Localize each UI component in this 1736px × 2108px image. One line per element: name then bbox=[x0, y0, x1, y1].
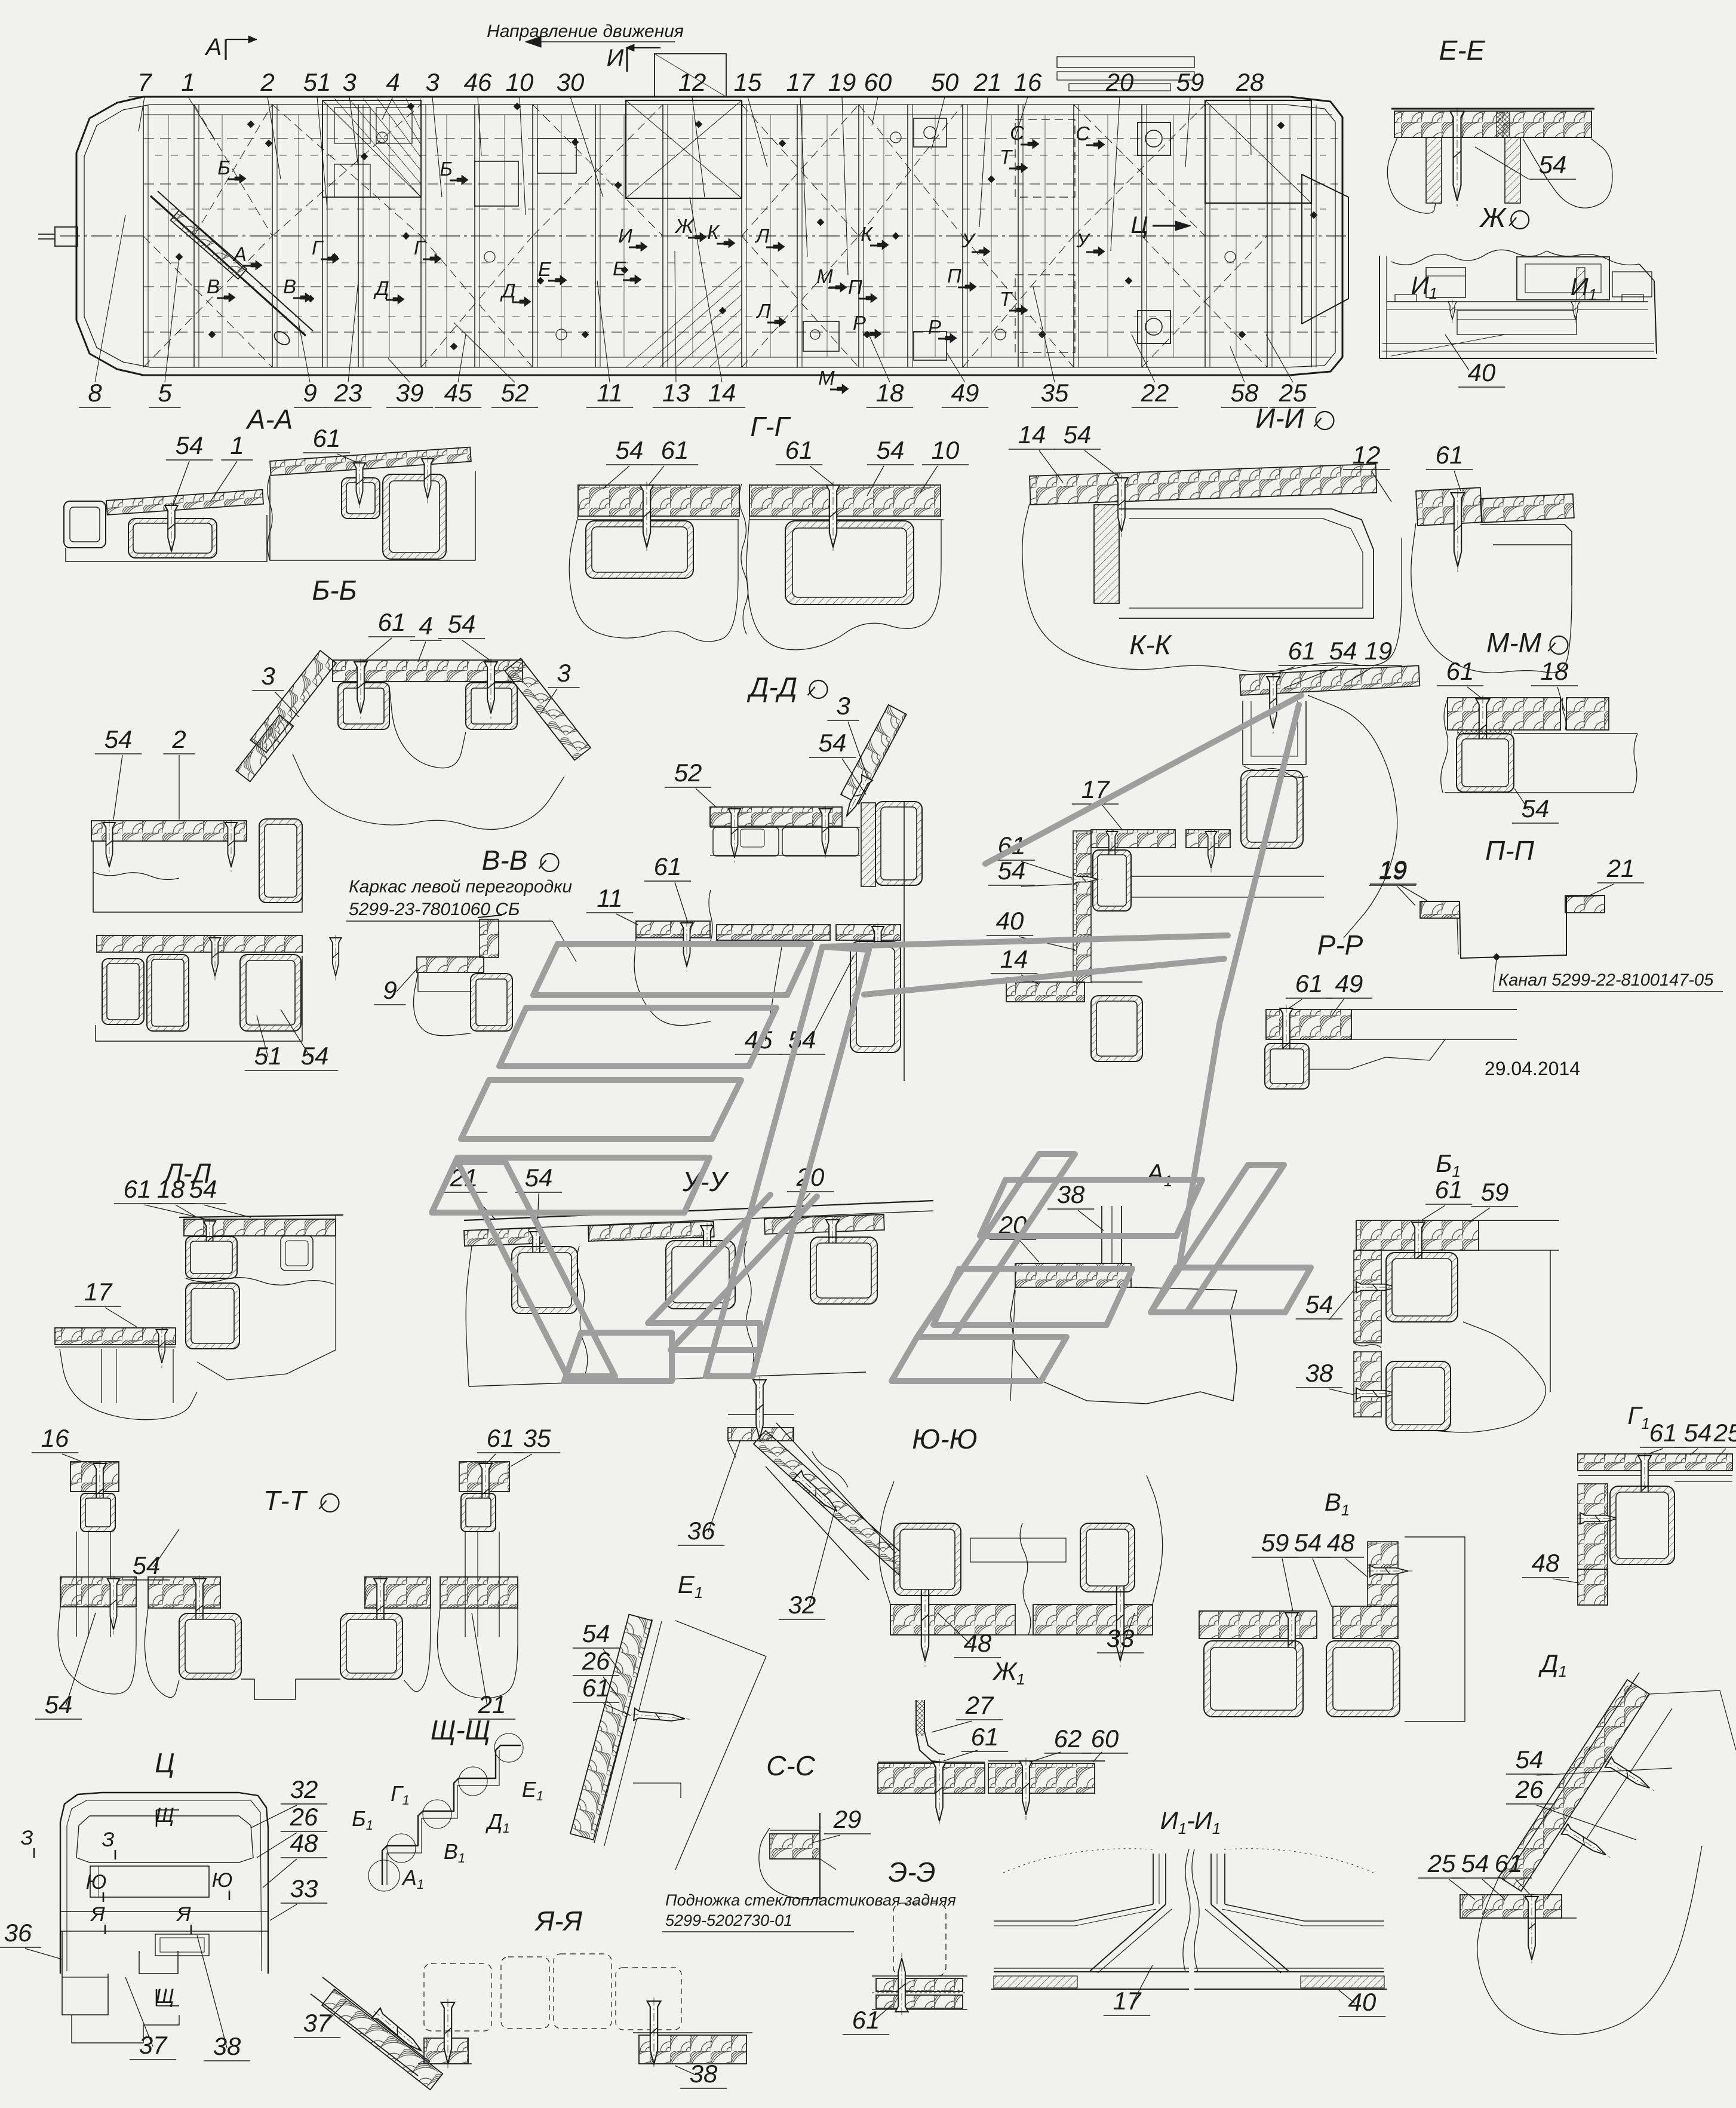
svg-text:61: 61 bbox=[1649, 1419, 1677, 1447]
svg-text:49: 49 bbox=[951, 379, 979, 407]
svg-text:38: 38 bbox=[213, 2032, 241, 2060]
svg-text:60: 60 bbox=[1091, 1725, 1119, 1753]
svg-text:К: К bbox=[707, 221, 720, 243]
svg-text:9: 9 bbox=[303, 379, 317, 407]
svg-text:29: 29 bbox=[833, 1805, 862, 1833]
svg-text:Ю: Ю bbox=[212, 1869, 233, 1892]
svg-text:Д-Д: Д-Д bbox=[746, 671, 797, 702]
svg-text:32: 32 bbox=[290, 1775, 318, 1803]
svg-text:17: 17 bbox=[786, 68, 815, 96]
svg-text:В: В bbox=[283, 275, 296, 297]
svg-text:23: 23 bbox=[334, 379, 362, 407]
svg-text:54: 54 bbox=[1461, 1849, 1489, 1877]
svg-text:Я: Я bbox=[90, 1903, 105, 1926]
svg-text:54: 54 bbox=[133, 1551, 161, 1579]
svg-text:Л: Л bbox=[756, 300, 771, 322]
svg-text:54: 54 bbox=[105, 725, 133, 753]
svg-text:15: 15 bbox=[734, 68, 762, 96]
svg-text:Каркас левой перегородки: Каркас левой перегородки bbox=[349, 877, 572, 897]
svg-text:36: 36 bbox=[687, 1517, 715, 1545]
svg-text:61: 61 bbox=[582, 1674, 610, 1702]
svg-text:22: 22 bbox=[1141, 379, 1169, 407]
svg-text:7: 7 bbox=[137, 68, 152, 96]
svg-text:10: 10 bbox=[932, 436, 960, 464]
svg-text:Направление движения: Направление движения bbox=[487, 22, 684, 41]
svg-text:54: 54 bbox=[1516, 1745, 1544, 1773]
svg-text:59: 59 bbox=[1481, 1178, 1509, 1206]
svg-text:5: 5 bbox=[158, 379, 172, 407]
svg-text:З: З bbox=[102, 1828, 115, 1851]
svg-text:48: 48 bbox=[290, 1829, 318, 1857]
svg-text:Ю: Ю bbox=[86, 1871, 107, 1894]
svg-text:27: 27 bbox=[965, 1691, 994, 1719]
svg-text:54: 54 bbox=[301, 1042, 329, 1070]
svg-text:К-К: К-К bbox=[1129, 629, 1172, 660]
svg-text:Р-Р: Р-Р bbox=[1317, 929, 1363, 961]
svg-text:Т: Т bbox=[1000, 288, 1013, 310]
svg-text:54: 54 bbox=[1329, 637, 1357, 665]
svg-text:37: 37 bbox=[303, 2009, 332, 2037]
svg-text:17: 17 bbox=[1113, 1987, 1142, 2015]
svg-text:М: М bbox=[816, 265, 833, 287]
svg-text:40: 40 bbox=[1468, 358, 1496, 386]
svg-text:40: 40 bbox=[996, 907, 1024, 935]
svg-text:16: 16 bbox=[1014, 68, 1042, 96]
svg-text:С-С: С-С bbox=[766, 1750, 816, 1781]
svg-text:61: 61 bbox=[124, 1175, 152, 1203]
svg-text:46: 46 bbox=[464, 68, 492, 96]
svg-text:54: 54 bbox=[998, 857, 1026, 885]
svg-text:3: 3 bbox=[557, 659, 570, 687]
svg-text:Э-Э: Э-Э bbox=[888, 1857, 935, 1888]
svg-text:54: 54 bbox=[189, 1175, 217, 1203]
svg-text:18: 18 bbox=[876, 379, 904, 407]
svg-text:Ж: Ж bbox=[674, 215, 695, 237]
svg-text:61: 61 bbox=[852, 2006, 880, 2034]
svg-text:3: 3 bbox=[261, 662, 275, 690]
svg-text:26: 26 bbox=[290, 1803, 318, 1831]
svg-text:48: 48 bbox=[964, 1629, 992, 1657]
svg-text:Л: Л bbox=[755, 225, 770, 247]
svg-text:25: 25 bbox=[1713, 1419, 1736, 1447]
svg-text:1: 1 bbox=[230, 431, 244, 459]
svg-text:П: П bbox=[947, 265, 961, 287]
svg-text:Щ: Щ bbox=[155, 1985, 174, 2008]
svg-text:14: 14 bbox=[1000, 945, 1028, 973]
svg-text:П-П: П-П bbox=[1485, 835, 1535, 866]
svg-text:З: З bbox=[21, 1827, 33, 1849]
svg-text:54: 54 bbox=[1064, 421, 1092, 449]
svg-text:Щ-Щ: Щ-Щ bbox=[431, 1714, 490, 1745]
svg-text:А: А bbox=[205, 34, 222, 60]
svg-text:С: С bbox=[1076, 122, 1090, 145]
svg-text:61: 61 bbox=[378, 608, 406, 636]
svg-text:49: 49 bbox=[1335, 969, 1363, 998]
svg-text:И: И bbox=[618, 225, 632, 247]
svg-text:61: 61 bbox=[1288, 637, 1316, 665]
svg-text:54: 54 bbox=[877, 436, 905, 464]
svg-text:А: А bbox=[232, 243, 247, 265]
svg-text:38: 38 bbox=[1057, 1180, 1085, 1208]
svg-text:У: У bbox=[1076, 229, 1090, 251]
svg-text:14: 14 bbox=[708, 379, 736, 407]
svg-text:А-А: А-А bbox=[245, 404, 293, 435]
svg-text:62: 62 bbox=[1054, 1725, 1082, 1753]
svg-text:Щ: Щ bbox=[155, 1804, 174, 1827]
svg-text:54: 54 bbox=[1522, 794, 1550, 823]
svg-text:52: 52 bbox=[674, 759, 702, 787]
svg-text:50: 50 bbox=[931, 68, 959, 96]
svg-text:17: 17 bbox=[84, 1278, 113, 1306]
svg-text:54: 54 bbox=[1294, 1529, 1322, 1557]
svg-text:В: В bbox=[207, 275, 220, 297]
svg-text:36: 36 bbox=[4, 1919, 32, 1947]
svg-text:54: 54 bbox=[1684, 1419, 1712, 1447]
svg-text:2: 2 bbox=[171, 725, 186, 753]
svg-text:26: 26 bbox=[1515, 1775, 1544, 1803]
svg-text:3: 3 bbox=[425, 68, 439, 96]
svg-text:Р: Р bbox=[928, 316, 941, 338]
svg-text:Г: Г bbox=[414, 237, 426, 259]
svg-text:14: 14 bbox=[1018, 421, 1046, 449]
svg-text:Д: Д bbox=[499, 280, 515, 302]
svg-text:29.04.2014: 29.04.2014 bbox=[1485, 1058, 1580, 1079]
svg-text:54: 54 bbox=[176, 431, 204, 459]
svg-text:Б: Б bbox=[217, 157, 230, 179]
svg-text:Я: Я bbox=[176, 1903, 191, 1926]
svg-text:52: 52 bbox=[501, 379, 529, 407]
svg-text:8: 8 bbox=[88, 379, 102, 407]
svg-text:61: 61 bbox=[785, 436, 813, 464]
svg-text:30: 30 bbox=[557, 68, 585, 96]
svg-text:М-М: М-М bbox=[1486, 627, 1542, 658]
svg-text:61: 61 bbox=[661, 436, 689, 464]
svg-text:25: 25 bbox=[1427, 1849, 1456, 1877]
svg-text:У: У bbox=[961, 229, 976, 251]
svg-text:18: 18 bbox=[1541, 657, 1569, 685]
svg-text:10: 10 bbox=[506, 68, 534, 96]
svg-text:9: 9 bbox=[383, 976, 397, 1004]
svg-text:35: 35 bbox=[523, 1424, 551, 1452]
svg-text:Е-Е: Е-Е bbox=[1439, 35, 1486, 66]
svg-text:33: 33 bbox=[290, 1874, 318, 1903]
svg-text:3: 3 bbox=[836, 692, 850, 720]
svg-text:12: 12 bbox=[678, 68, 706, 96]
svg-text:5299-5202730-01: 5299-5202730-01 bbox=[665, 1911, 792, 1929]
svg-text:32: 32 bbox=[788, 1591, 816, 1619]
svg-text:19: 19 bbox=[1365, 637, 1393, 665]
svg-text:С: С bbox=[1010, 122, 1025, 144]
svg-text:Канал 5299-22-8100147-05: Канал 5299-22-8100147-05 bbox=[1498, 971, 1714, 990]
svg-text:51: 51 bbox=[303, 68, 331, 96]
svg-text:21: 21 bbox=[973, 68, 1002, 96]
svg-text:Ц: Ц bbox=[1130, 212, 1148, 238]
svg-text:3: 3 bbox=[342, 68, 356, 96]
svg-text:26: 26 bbox=[582, 1647, 610, 1675]
svg-text:11: 11 bbox=[597, 884, 623, 912]
svg-text:Я-Я: Я-Я bbox=[534, 1906, 583, 1937]
svg-text:61: 61 bbox=[1295, 969, 1323, 998]
svg-text:59: 59 bbox=[1261, 1529, 1289, 1557]
svg-text:54: 54 bbox=[819, 729, 847, 757]
svg-text:54: 54 bbox=[525, 1164, 553, 1192]
svg-text:40: 40 bbox=[1348, 1988, 1376, 2016]
svg-text:Ю-Ю: Ю-Ю bbox=[912, 1423, 977, 1455]
svg-text:1: 1 bbox=[181, 68, 195, 96]
svg-text:38: 38 bbox=[1305, 1359, 1334, 1387]
svg-text:11: 11 bbox=[597, 379, 623, 407]
svg-text:61: 61 bbox=[1495, 1849, 1523, 1877]
svg-text:39: 39 bbox=[396, 379, 424, 407]
svg-text:61: 61 bbox=[1435, 1176, 1463, 1204]
svg-text:13: 13 bbox=[662, 379, 690, 407]
svg-text:61: 61 bbox=[487, 1424, 515, 1452]
svg-text:19: 19 bbox=[828, 68, 856, 96]
svg-text:18: 18 bbox=[157, 1175, 185, 1203]
svg-text:Т-Т: Т-Т bbox=[263, 1485, 308, 1516]
svg-text:60: 60 bbox=[864, 68, 892, 96]
svg-text:48: 48 bbox=[1532, 1549, 1560, 1577]
svg-text:4: 4 bbox=[386, 68, 400, 96]
svg-text:61: 61 bbox=[971, 1723, 999, 1751]
svg-text:Р: Р bbox=[853, 312, 866, 334]
svg-text:Е: Е bbox=[538, 258, 552, 280]
svg-text:И: И bbox=[607, 45, 624, 71]
svg-text:К: К bbox=[861, 223, 873, 245]
svg-text:28: 28 bbox=[1236, 68, 1264, 96]
svg-text:И-И: И-И bbox=[1255, 403, 1304, 434]
svg-text:16: 16 bbox=[41, 1424, 69, 1452]
svg-text:54: 54 bbox=[1305, 1290, 1334, 1318]
svg-text:Т: Т bbox=[1000, 146, 1013, 168]
svg-text:54: 54 bbox=[448, 610, 476, 638]
svg-text:33: 33 bbox=[1107, 1624, 1135, 1652]
svg-text:58: 58 bbox=[1231, 379, 1259, 407]
svg-text:Е: Е bbox=[613, 257, 626, 280]
svg-text:Б: Б bbox=[440, 158, 452, 180]
svg-text:Подножка стеклопластиковая зад: Подножка стеклопластиковая задняя bbox=[665, 1891, 956, 1909]
svg-text:35: 35 bbox=[1041, 379, 1069, 407]
svg-text:4: 4 bbox=[419, 612, 432, 640]
svg-text:19: 19 bbox=[1379, 855, 1408, 883]
svg-text:Б-Б: Б-Б bbox=[312, 575, 357, 606]
svg-text:Ж: Ж bbox=[1479, 202, 1507, 233]
svg-text:В-В: В-В bbox=[482, 845, 528, 876]
svg-text:54: 54 bbox=[616, 436, 644, 464]
svg-text:П: П bbox=[848, 276, 862, 298]
svg-text:54: 54 bbox=[582, 1619, 610, 1647]
svg-text:54: 54 bbox=[45, 1690, 73, 1719]
svg-text:61: 61 bbox=[1436, 441, 1464, 469]
svg-text:51: 51 bbox=[254, 1042, 282, 1070]
svg-text:20: 20 bbox=[1105, 68, 1134, 96]
svg-text:Д: Д bbox=[373, 277, 389, 299]
svg-text:61: 61 bbox=[1446, 657, 1474, 685]
svg-text:12: 12 bbox=[1353, 441, 1381, 469]
svg-text:54: 54 bbox=[1539, 151, 1567, 179]
svg-text:Ц: Ц bbox=[155, 1747, 174, 1778]
svg-text:61: 61 bbox=[313, 424, 341, 452]
svg-text:2: 2 bbox=[260, 68, 274, 96]
svg-text:48: 48 bbox=[1327, 1529, 1355, 1557]
svg-text:М: М bbox=[818, 367, 835, 389]
svg-text:45: 45 bbox=[444, 379, 472, 407]
svg-text:61: 61 bbox=[654, 852, 682, 880]
svg-text:21: 21 bbox=[1606, 854, 1635, 882]
svg-text:Г: Г bbox=[312, 237, 324, 259]
svg-text:37: 37 bbox=[139, 2031, 168, 2059]
svg-text:59: 59 bbox=[1176, 68, 1205, 96]
